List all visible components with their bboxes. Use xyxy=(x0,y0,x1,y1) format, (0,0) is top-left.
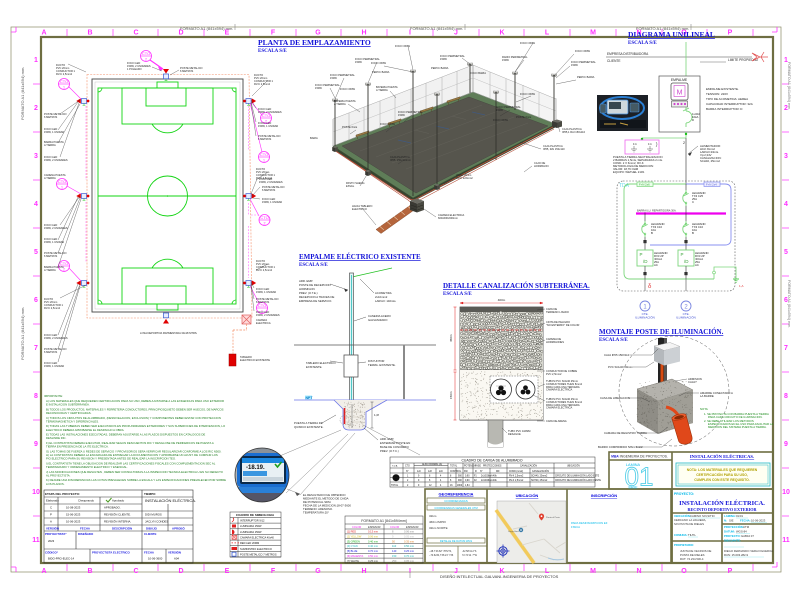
svg-text:BIDO-PRO-ELEC-14: BIDO-PRO-ELEC-14 xyxy=(48,557,75,561)
svg-text:UBICACIÓN: UBICACIÓN xyxy=(567,465,580,468)
svg-text:2x10/26mA: 2x10/26mA xyxy=(481,479,493,482)
svg-text:0.40 mm: 0.40 mm xyxy=(368,544,378,548)
svg-text:0.50 mm: 0.50 mm xyxy=(368,554,378,558)
svg-text:EMPALME: EMPALME xyxy=(671,78,688,82)
svg-text:6 METROS: 6 METROS xyxy=(44,115,58,119)
svg-text:B: B xyxy=(692,231,694,235)
svg-text:G: G xyxy=(315,30,321,37)
svg-text:CAMARA ELECTRICA 40x40: CAMARA ELECTRICA 40x40 xyxy=(240,536,274,540)
svg-text:COLOR: COLOR xyxy=(390,525,399,529)
svg-text:5: 5 xyxy=(34,249,38,256)
svg-text:MEDICION DEL SISTEMA PUESTA A: MEDICION DEL SISTEMA PUESTA A TIERRA. xyxy=(708,425,767,429)
svg-text:ILUMINACIÓN: ILUMINACIÓN xyxy=(635,315,655,320)
svg-text:G: G xyxy=(315,568,321,575)
svg-text:QUIMICO EXISTENTE.: QUIMICO EXISTENTE. xyxy=(294,425,324,429)
svg-text:A: A xyxy=(41,568,46,575)
svg-text:-18.19.: -18.19. xyxy=(246,465,265,471)
svg-text:150W, 2 UNIDADES: 150W, 2 UNIDADES xyxy=(44,336,68,340)
svg-text:DIAGRAMA UNILINEAL: DIAGRAMA UNILINEAL xyxy=(628,30,715,39)
svg-text:RV-K 2,5mm2: RV-K 2,5mm2 xyxy=(509,480,524,482)
svg-text:150: 150 xyxy=(392,554,397,558)
svg-text:T.D.A: T.D.A xyxy=(392,465,398,468)
svg-text:FOCO 150W: FOCO 150W xyxy=(380,122,396,126)
svg-text:TERMA. EXISTENTE.: TERMA. EXISTENTE. xyxy=(368,363,396,367)
svg-text:1: 1 xyxy=(34,57,38,64)
svg-text:PROYECTO:: PROYECTO: xyxy=(674,492,694,496)
svg-text:1800: 1800 xyxy=(457,485,463,487)
svg-text:9: 9 xyxy=(34,441,38,448)
svg-text:FORMATO A1 (841x594) mm.: FORMATO A1 (841x594) mm. xyxy=(787,280,791,328)
svg-text:RUT: 74.234.530-4: RUT: 74.234.530-4 xyxy=(680,557,704,561)
svg-text:1π: 1π xyxy=(633,142,637,146)
svg-text:EQUIPO: WETHEL 2103.: EQUIPO: WETHEL 2103. xyxy=(613,170,645,174)
svg-text:PERVC BARIA: PERVC BARIA xyxy=(577,75,595,79)
svg-text:DETALLE CANALIZACIÓN SUBTERRÁN: DETALLE CANALIZACIÓN SUBTERRÁNEA. xyxy=(443,282,590,290)
svg-text:DATUM:: DATUM: xyxy=(724,530,735,534)
svg-text:SCH40, 25mm2: SCH40, 25mm2 xyxy=(531,475,548,477)
svg-text:P: P xyxy=(728,30,733,37)
svg-text:CTO: CTO xyxy=(260,152,268,157)
svg-text:CTO: CTO xyxy=(58,179,66,184)
svg-text:SCH40, 25mm2: SCH40, 25mm2 xyxy=(700,159,720,163)
svg-text:CUMPLEN CON ESTE REQUISITO.: CUMPLEN CON ESTE REQUISITO. xyxy=(694,478,750,482)
svg-text:CTO: CTO xyxy=(405,466,410,468)
svg-text:CAMARA ELECTRICA: CAMARA ELECTRICA xyxy=(546,388,573,392)
svg-text:FECHA: FECHA xyxy=(80,527,91,531)
svg-text:NOTA:: NOTA: xyxy=(700,407,709,411)
svg-text:0.50 mm: 0.50 mm xyxy=(404,544,414,548)
svg-text:VERSIÓN: VERSIÓN xyxy=(168,550,181,555)
svg-text:HORMIGON: HORMIGON xyxy=(534,164,549,168)
svg-text:POSTE METALICO 7 METROS: POSTE METALICO 7 METROS xyxy=(240,552,277,556)
svg-text:CAPACIDAD INTERRUPTOR: 32A: CAPACIDAD INTERRUPTOR: 32A xyxy=(706,102,753,106)
svg-text:ESPESOR: ESPESOR xyxy=(406,525,419,529)
svg-text:S/N PUNTA DE RIELES: S/N PUNTA DE RIELES xyxy=(674,522,704,526)
svg-text:A TIERRA: A TIERRA xyxy=(44,143,56,147)
svg-text:CAMARA ELECTRICA: CAMARA ELECTRICA xyxy=(546,406,573,410)
svg-text:ESVAL: ESVAL xyxy=(346,184,355,188)
svg-text:10-06-2023: 10-06-2023 xyxy=(66,520,81,524)
svg-text:10-06-2023: 10-06-2023 xyxy=(751,519,766,523)
svg-text:6 METROS: 6 METROS xyxy=(180,69,194,73)
svg-text:CAJA IP65 150X110: CAJA IP65 150X110 xyxy=(604,353,630,357)
svg-text:A04: A04 xyxy=(174,557,179,561)
svg-text:ALIM. NORMAL (A): ALIM. NORMAL (A) xyxy=(422,463,442,466)
svg-text:150W, 2 UNIDADES: 150W, 2 UNIDADES xyxy=(44,158,68,162)
svg-text:LA BARRE: LA BARRE xyxy=(700,394,714,398)
svg-text:Verga Hect: Verga Hect xyxy=(508,530,519,533)
svg-text:--70.6234,7'38.21" 736: --70.6234,7'38.21" 736 xyxy=(429,554,454,557)
svg-text:1: 1 xyxy=(263,159,265,163)
svg-text:DIDI MUROS: DIDI MUROS xyxy=(145,513,162,517)
svg-text:[6] MAGENTA: [6] MAGENTA xyxy=(347,554,364,558)
svg-text:CTO: CTO xyxy=(260,215,268,220)
svg-text:RV-K 2x6mm2: RV-K 2x6mm2 xyxy=(456,176,473,180)
svg-text:FORMATO A1 (841x594) mm.: FORMATO A1 (841x594) mm. xyxy=(20,67,25,120)
svg-text:--28.7'43.82" 787274,: --28.7'43.82" 787274, xyxy=(429,550,452,553)
svg-text:ELECTRICO EXISTENTE: ELECTRICO EXISTENTE xyxy=(240,358,270,362)
svg-text:PVC 2,5mm2: PVC 2,5mm2 xyxy=(546,372,562,376)
svg-text:BASE: BASE xyxy=(628,486,638,490)
svg-text:01/01: 01/01 xyxy=(736,514,743,518)
svg-text:10-06-3600: 10-06-3600 xyxy=(148,557,163,561)
svg-text:Elaborado: Elaborado xyxy=(46,499,59,503)
svg-text:150W: 150W xyxy=(315,86,322,90)
svg-text:FOCO BARIA: FOCO BARIA xyxy=(470,71,486,75)
svg-text:E) TODAS LAS INSTALACIONES EJ: E) TODAS LAS INSTALACIONES EJECUTADAS, D… xyxy=(46,433,205,437)
svg-text:CERTIFICACIÓN PARA SU USO,: CERTIFICACIÓN PARA SU USO, xyxy=(696,472,748,477)
svg-text:0.70 mm: 0.70 mm xyxy=(368,549,378,553)
svg-text:FOCO 150W: FOCO 150W xyxy=(520,41,536,45)
svg-text:D: D xyxy=(692,118,694,122)
svg-text:VERSIÓN: VERSIÓN xyxy=(46,526,59,531)
svg-text:PROYECCIÓN:: PROYECCIÓN: xyxy=(724,524,744,529)
svg-text:A TIERRA: A TIERRA xyxy=(44,176,56,180)
svg-text:LUMINARIA 150W: LUMINARIA 150W xyxy=(240,530,262,534)
svg-text:COMUNA:: COMUNA: xyxy=(674,533,688,537)
svg-text:L: L xyxy=(545,30,550,37)
svg-text:EMPRESA DE SERVICIO.: EMPRESA DE SERVICIO. xyxy=(299,299,332,303)
svg-text:Chequeando: Chequeando xyxy=(78,499,94,503)
svg-text:8: 8 xyxy=(784,393,788,400)
svg-text:APROBÓ: APROBÓ xyxy=(172,526,185,531)
svg-text:150W: 150W xyxy=(571,63,578,67)
svg-text:TIEMPO: TIEMPO xyxy=(144,492,156,496)
svg-text:ELECTRICA: ELECTRICA xyxy=(256,321,271,325)
svg-text:UBICACIÓN: UBICACIÓN xyxy=(516,493,539,498)
svg-text:[7] WHITE: [7] WHITE xyxy=(347,559,359,563)
svg-text:M: M xyxy=(590,568,596,575)
svg-text:[1] RED: [1] RED xyxy=(347,530,356,534)
svg-text:72.74'12. 7"W: 72.74'12. 7"W xyxy=(462,554,478,557)
svg-text:C: C xyxy=(133,30,138,37)
svg-text:DIF: DIF xyxy=(496,471,500,473)
svg-text:CLIENTE: CLIENTE xyxy=(144,532,156,536)
svg-text:150W: 150W xyxy=(355,60,362,64)
svg-text:ESCALA S/E: ESCALA S/E xyxy=(443,292,472,297)
svg-text:150W: 150W xyxy=(398,113,405,117)
svg-text:CUADRO DE CARGA DE ALUMBRADO: CUADRO DE CARGA DE ALUMBRADO xyxy=(461,459,522,463)
svg-text:PVC SCH40 20mm.: PVC SCH40 20mm. xyxy=(608,365,633,369)
svg-text:ESPESOR: ESPESOR xyxy=(368,525,381,529)
svg-text:TOTAL: TOTAL xyxy=(450,465,458,468)
svg-text:0.40 mm: 0.40 mm xyxy=(368,539,378,543)
svg-text:PERVC BARIA: PERVC BARIA xyxy=(431,66,449,70)
svg-text:COLOR: COLOR xyxy=(352,525,361,529)
svg-text:CTO: CTO xyxy=(142,51,150,56)
svg-text:POSTE 6mts: POSTE 6mts xyxy=(516,115,532,119)
svg-text:RED LED 20MM: RED LED 20MM xyxy=(240,541,259,545)
svg-text:FORMATO A1 (841x594) mm.: FORMATO A1 (841x594) mm. xyxy=(410,26,463,31)
svg-text:[2] YELLOW: [2] YELLOW xyxy=(347,535,362,539)
svg-text:450m: 450m xyxy=(449,334,453,342)
svg-text:CIRCUITO DE ILUMINACIÓN LADO E: CIRCUITO DE ILUMINACIÓN LADO ESTE xyxy=(555,474,600,477)
svg-text:"NO ENTERRO" DE COLOR: "NO ENTERRO" DE COLOR xyxy=(546,323,580,327)
svg-text:K) DEJARE UNA DISCREPANCIAS L: K) DEJARE UNA DISCREPANCIAS LAS COTAS PR… xyxy=(46,478,226,482)
svg-text:0.25 mm: 0.25 mm xyxy=(404,549,414,553)
svg-text:0.05 mm: 0.05 mm xyxy=(404,535,414,539)
svg-text:CIRCUITO DE ILUMINACIÓN LADO O: CIRCUITO DE ILUMINACIÓN LADO OESTE xyxy=(555,479,601,482)
svg-text:FOCO 150W: FOCO 150W xyxy=(575,49,591,53)
svg-text:LUMINARIA 150W: LUMINARIA 150W xyxy=(240,524,262,528)
svg-text:15-06-2023: 15-06-2023 xyxy=(66,513,81,517)
svg-text:A: A xyxy=(41,30,46,37)
svg-text:NOTA: LOS MATERIALES QUE REQU: NOTA: LOS MATERIALES QUE REQUIEREN xyxy=(687,468,758,472)
svg-text:0,90: 0,90 xyxy=(465,480,470,482)
svg-text:APROBADO.: APROBADO. xyxy=(104,506,121,510)
svg-text:COORDENADAS GENERALES UTM: COORDENADAS GENERALES UTM xyxy=(434,506,477,510)
svg-text:F: F xyxy=(271,568,276,575)
svg-text:ILUMINACIÓN: ILUMINACIÓN xyxy=(676,315,696,320)
svg-text:[4] CYAN: [4] CYAN xyxy=(347,544,358,548)
svg-text:DESCRIPCIÓN: DESCRIPCIÓN xyxy=(112,526,132,531)
svg-text:RUN: 15.003.282-9: RUN: 15.003.282-9 xyxy=(724,553,749,557)
svg-text:TILTIL: TILTIL xyxy=(688,533,696,537)
svg-text:2: 2 xyxy=(264,222,266,226)
svg-text:D: D xyxy=(178,568,183,575)
svg-text:FORMATO A1 (841x594) mm.: FORMATO A1 (841x594) mm. xyxy=(787,62,791,110)
svg-text:J) LAS MODIFICACIONES QUE RE: J) LAS MODIFICACIONES QUE RESULTEN , DEB… xyxy=(46,470,224,474)
svg-text:AC: AC xyxy=(695,263,699,267)
svg-text:0.35 mm: 0.35 mm xyxy=(404,539,414,543)
svg-text:PERVC BARIA: PERVC BARIA xyxy=(372,70,390,74)
svg-text:7: 7 xyxy=(34,345,38,352)
svg-text:CANALIZACIÓN: CANALIZACIÓN xyxy=(520,465,537,468)
svg-text:RV-K 2,5mm2: RV-K 2,5mm2 xyxy=(509,475,524,477)
svg-text:TIERRA EN PRESENCIA DE LA ITE: TIERRA EN PRESENCIA DE LA ITE ELECTRICA. xyxy=(46,445,109,449)
svg-text:140: 140 xyxy=(392,549,397,553)
svg-text:CTO: CTO xyxy=(60,79,68,84)
svg-text:N:: N: xyxy=(724,519,727,523)
svg-text:WGS-84: WGS-84 xyxy=(736,530,747,534)
svg-text:4: 4 xyxy=(34,201,38,208)
svg-text:0,90: 0,90 xyxy=(465,475,470,477)
svg-text:PROYECTISTA ELECTRICO: PROYECTISTA ELECTRICO xyxy=(92,551,130,555)
svg-text:150W: 150W xyxy=(330,76,337,80)
svg-text:CANALIZACIÓN: CANALIZACIÓN xyxy=(532,470,549,473)
svg-text:N°: N° xyxy=(406,471,409,473)
svg-text:SUMINISTRO ELECTRICO: SUMINISTRO ELECTRICO xyxy=(240,547,272,551)
svg-text:DETALLE DE DATUM WGS: DETALLE DE DATUM WGS xyxy=(440,539,473,543)
svg-text:1: 1 xyxy=(63,86,65,90)
svg-text:RECONOCIDAS Y CERTIFICADAS.: RECONOCIDAS Y CERTIFICADAS. xyxy=(46,411,92,415)
svg-text:RV-K 2,5mm2: RV-K 2,5mm2 xyxy=(254,82,271,86)
svg-text:GAB42 07: GAB42 07 xyxy=(741,534,754,538)
svg-text:P: P xyxy=(640,252,643,257)
svg-text:6 METROS: 6 METROS xyxy=(44,350,58,354)
svg-text:INSTALACIÓN ELÉCTRICA.: INSTALACIÓN ELÉCTRICA. xyxy=(145,498,196,503)
svg-text:ESCALA S/E: ESCALA S/E xyxy=(628,41,657,46)
svg-text:/D: /D xyxy=(684,259,689,264)
svg-text:8: 8 xyxy=(34,393,38,400)
svg-text:150W, 2 UNIDADES: 150W, 2 UNIDADES xyxy=(256,313,280,317)
svg-text:JACLYN CONDES: JACLYN CONDES xyxy=(145,520,168,524)
svg-text:O: O xyxy=(681,568,687,575)
svg-text:POSTE 6mts: POSTE 6mts xyxy=(342,125,358,129)
svg-text:2: 2 xyxy=(34,105,38,112)
svg-text:COORDENADAS: COORDENADAS xyxy=(444,499,468,503)
svg-text:FECHA:: FECHA: xyxy=(740,519,751,523)
svg-text:M: M xyxy=(590,30,596,37)
svg-text:2: 2 xyxy=(683,141,685,145)
svg-text:REVISIÓN INTERNA.: REVISIÓN INTERNA. xyxy=(104,519,131,524)
svg-text:150W: 150W xyxy=(496,108,503,112)
svg-text:150W: 150W xyxy=(440,57,447,61)
svg-text:ETAPA DEL PROYECTO:: ETAPA DEL PROYECTO: xyxy=(45,492,80,496)
svg-text:FOCO 150W: FOCO 150W xyxy=(340,87,356,91)
svg-text:7: 7 xyxy=(784,345,788,352)
svg-text:RV-K 2,5mm2: RV-K 2,5mm2 xyxy=(56,72,73,76)
svg-text:LARGO: 140mts.: LARGO: 140mts. xyxy=(375,299,397,303)
svg-text:466m IMPRI: 466m IMPRI xyxy=(429,520,446,524)
svg-text:10: 10 xyxy=(782,489,790,496)
svg-text:COND.(mm2): COND.(mm2) xyxy=(509,471,523,473)
svg-text:250: 250 xyxy=(392,559,397,563)
svg-text:0.25 mm: 0.25 mm xyxy=(368,559,378,563)
svg-text:P: P xyxy=(728,568,733,575)
svg-text:TERRENO LISADO: TERRENO LISADO xyxy=(546,310,569,314)
svg-text:DIBUJO: DIBUJO xyxy=(146,527,158,531)
svg-text:0.06 mm: 0.06 mm xyxy=(404,530,414,534)
svg-text:FORMATO A1 (841x594) mm.: FORMATO A1 (841x594) mm. xyxy=(20,307,25,360)
svg-text:400m: 400m xyxy=(498,298,506,302)
svg-text:SCH40, 25mm2: SCH40, 25mm2 xyxy=(531,480,548,482)
svg-text:FOCO 150W: FOCO 150W xyxy=(371,61,387,65)
svg-text:11: 11 xyxy=(32,537,40,544)
svg-text:N: N xyxy=(636,568,641,575)
svg-text:A TIERRA: A TIERRA xyxy=(44,268,56,272)
svg-text:10-08-2023: 10-08-2023 xyxy=(66,506,81,510)
svg-text:C: C xyxy=(692,200,694,204)
svg-text:1,0f: 1,0f xyxy=(374,413,379,417)
svg-text:150W, 1 UNIDAD: 150W, 1 UNIDAD xyxy=(258,124,278,128)
svg-text:Punta el Perio: Punta el Perio xyxy=(546,516,561,519)
svg-text:0.06 mm: 0.06 mm xyxy=(368,535,378,539)
svg-text:MBA INGENIERIA DE PROYECTOS.: MBA INGENIERIA DE PROYECTOS. xyxy=(611,455,668,459)
svg-text:FORMATO A1 [841x594mm]: FORMATO A1 [841x594mm] xyxy=(361,519,407,523)
svg-text:M: M xyxy=(677,90,683,97)
svg-text:FOCO 150W: FOCO 150W xyxy=(520,92,536,96)
svg-text:LAMINA:: LAMINA: xyxy=(724,514,736,518)
svg-text:K: K xyxy=(499,30,504,37)
svg-text:ESCALA S/E: ESCALA S/E xyxy=(599,338,628,343)
svg-text:PLANTA DE EMPLAZAMIENTO: PLANTA DE EMPLAZAMIENTO xyxy=(258,38,371,47)
svg-text:B: B xyxy=(651,231,653,235)
svg-text:6 METROS: 6 METROS xyxy=(256,300,270,304)
svg-text:150W, 2 UNIDADES: 150W, 2 UNIDADES xyxy=(258,110,282,114)
svg-text:6: 6 xyxy=(34,297,38,304)
svg-text:TENSION: 220V: TENSION: 220V xyxy=(706,92,728,96)
svg-text:150m: 150m xyxy=(449,391,453,399)
svg-text:ESCALA S/E: ESCALA S/E xyxy=(299,263,328,268)
svg-text:150W, 1 UNIDAD: 150W, 1 UNIDAD xyxy=(44,130,64,134)
svg-text:IMPORTANTE:: IMPORTANTE: xyxy=(44,394,63,398)
svg-text:GALVANIZADO: GALVANIZADO xyxy=(368,318,388,322)
svg-text:DISEÑADO: DISEÑADO xyxy=(78,531,94,536)
svg-text:DESLINDE RIC.: DESLINDE RIC. xyxy=(46,436,67,440)
svg-text:F+N 2x6: F+N 2x6 xyxy=(639,183,650,187)
svg-text:H: H xyxy=(361,568,366,575)
svg-text:9: 9 xyxy=(784,441,788,448)
svg-text:0.70 mm: 0.70 mm xyxy=(404,554,414,558)
svg-text:[3] GREEN: [3] GREEN xyxy=(347,539,360,543)
svg-text:PROTECCIONES: PROTECCIONES xyxy=(483,466,502,468)
svg-text:0.05 mm: 0.05 mm xyxy=(404,559,414,563)
svg-text:FOCO 150W: FOCO 150W xyxy=(493,118,509,122)
svg-text:150W, 1 UNIDAD: 150W, 1 UNIDAD xyxy=(262,200,282,204)
svg-text:N°: N° xyxy=(480,471,483,473)
svg-text:6 METROS: 6 METROS xyxy=(258,137,272,141)
svg-text:A TIERRA: A TIERRA xyxy=(334,102,346,106)
svg-text:6 METROS: 6 METROS xyxy=(262,188,276,192)
svg-text:ESCALA S/E: ESCALA S/E xyxy=(258,49,287,54)
svg-text:PREV. (O.T.C.): PREV. (O.T.C.) xyxy=(380,449,399,453)
svg-text:H: H xyxy=(361,30,366,37)
svg-text:0.13 mm: 0.13 mm xyxy=(368,530,378,534)
svg-text:REVISIÓN CLIENTE.: REVISIÓN CLIENTE. xyxy=(104,512,131,517)
svg-text:P: P xyxy=(50,513,52,517)
svg-text:CUADRO DE SIMBOLOGIA: CUADRO DE SIMBOLOGIA xyxy=(236,513,275,517)
svg-text:10: 10 xyxy=(32,489,40,496)
svg-text:1 POLEADO: 1 POLEADO xyxy=(127,67,142,71)
svg-text:FECHA: FECHA xyxy=(144,551,155,555)
svg-text:AC: AC xyxy=(654,263,658,267)
svg-text:BARRA INTERRUPTOR: D: BARRA INTERRUPTOR: D xyxy=(706,107,743,111)
svg-text:C: C xyxy=(50,506,52,510)
svg-text:B: B xyxy=(87,30,92,37)
svg-text:BARIA: BARIA xyxy=(310,136,318,140)
svg-text:FISICA: FISICA xyxy=(571,525,580,529)
svg-text:[5] BLUE: [5] BLUE xyxy=(347,549,358,553)
svg-text:6 METROS: 6 METROS xyxy=(44,254,58,258)
svg-text:150W, 2 UNIDADES: 150W, 2 UNIDADES xyxy=(259,180,283,184)
svg-text:PROYECTISTA*: PROYECTISTA* xyxy=(45,532,67,536)
svg-text:PROPIETARIO:: PROPIETARIO: xyxy=(674,543,694,547)
svg-text:150W, 1 UNIDAD: 150W, 1 UNIDAD xyxy=(44,240,64,244)
svg-text:1: 1 xyxy=(61,186,63,190)
svg-text:DISEÑO INTELECTUAL GALVANI-ING: DISEÑO INTELECTUAL GALVANI-INGENIERIA DE… xyxy=(440,574,559,579)
svg-text:5: 5 xyxy=(784,249,788,256)
svg-text:RV-K 2,5mm2: RV-K 2,5mm2 xyxy=(44,306,61,310)
svg-text:3: 3 xyxy=(34,153,38,160)
svg-text:CAJA?: CAJA? xyxy=(688,380,697,384)
svg-text:1π: 1π xyxy=(648,142,652,146)
svg-text:2023: 2023 xyxy=(48,539,55,543)
svg-text:EMPRESA DISTRIBUIDORA: EMPRESA DISTRIBUIDORA xyxy=(607,52,649,56)
svg-text:B: B xyxy=(87,568,92,575)
svg-text:P: P xyxy=(681,252,684,257)
svg-text:LOSA DEPORTIVA PAVIMENTADA 30x: LOSA DEPORTIVA PAVIMENTADA 30x18 MTRS. xyxy=(140,331,198,335)
svg-text:1,84: 1,84 xyxy=(465,485,470,487)
svg-text:C: C xyxy=(133,568,138,575)
svg-text:2: 2 xyxy=(145,58,147,62)
svg-text:F: F xyxy=(271,30,276,37)
svg-text:TOTAL: TOTAL xyxy=(391,484,399,487)
svg-text:1,A: 1,A xyxy=(739,284,744,288)
svg-text:INSTALACIÓN ELÉCTRICAS.: INSTALACIÓN ELÉCTRICAS. xyxy=(690,454,754,459)
svg-text:BARRA ILU. REPARTIDORA 30A.: BARRA ILU. REPARTIDORA 30A. xyxy=(637,209,677,213)
svg-text:INSCRIPCIÓN: INSCRIPCIÓN xyxy=(591,493,617,498)
svg-text:E: E xyxy=(225,568,230,575)
svg-text:EMPALME ELÉCTRICO EXISTENTE: EMPALME ELÉCTRICO EXISTENTE xyxy=(299,253,421,261)
svg-text:-32.58'41.2"S: -32.58'41.2"S xyxy=(462,550,477,553)
svg-text:RECINTO DEPORTIVO EXTERIOR: RECINTO DEPORTIVO EXTERIOR xyxy=(687,507,757,512)
svg-text:4: 4 xyxy=(784,201,788,208)
svg-text:LOS PLANOS.: LOS PLANOS. xyxy=(46,482,65,486)
svg-text:/D: /D xyxy=(643,259,648,264)
svg-text:UTM: UTM xyxy=(743,525,750,529)
svg-text:IP65,1 RAI 150x110: IP65,1 RAI 150x110 xyxy=(562,130,586,134)
